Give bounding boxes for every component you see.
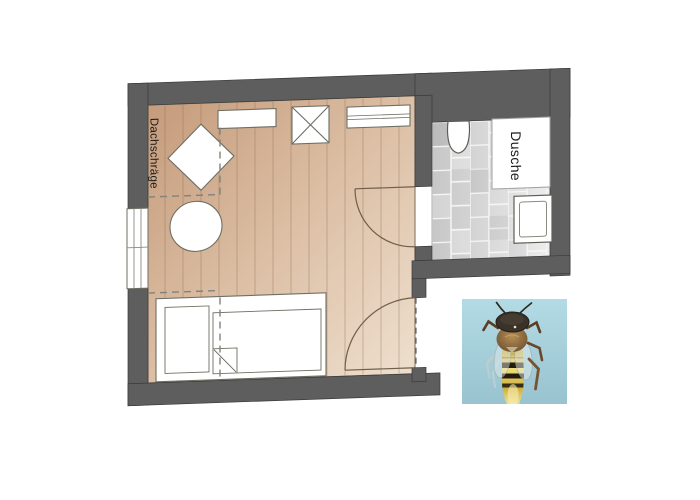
bee-abdomen-shine <box>508 384 519 406</box>
wall-bathroom-right <box>550 68 570 276</box>
bee-head-sheen <box>500 314 524 325</box>
sideboard <box>218 109 276 129</box>
floorplan-page: Dusche Dachschräge <box>0 0 700 500</box>
wall-divider-upper <box>415 95 432 187</box>
wall-divider-lower <box>412 278 426 297</box>
bee-head-glint <box>514 326 517 329</box>
bee-photo <box>462 299 567 406</box>
sink-basin <box>520 201 547 237</box>
wall-divider-stub <box>412 367 426 381</box>
radiator <box>347 105 410 128</box>
wall-left-upper <box>128 83 148 209</box>
floorplan-image: Dusche Dachschräge <box>0 0 700 500</box>
bed-mattress <box>213 309 321 374</box>
window <box>127 208 148 289</box>
wall-top-bathroom <box>415 68 570 122</box>
wall-divider-mid <box>415 246 432 261</box>
sloped-roof-label: Dachschräge <box>148 118 160 189</box>
window-frame <box>127 208 148 289</box>
shower-label: Dusche <box>508 131 524 181</box>
bee-head <box>496 312 529 332</box>
bed-pillow <box>165 306 209 374</box>
